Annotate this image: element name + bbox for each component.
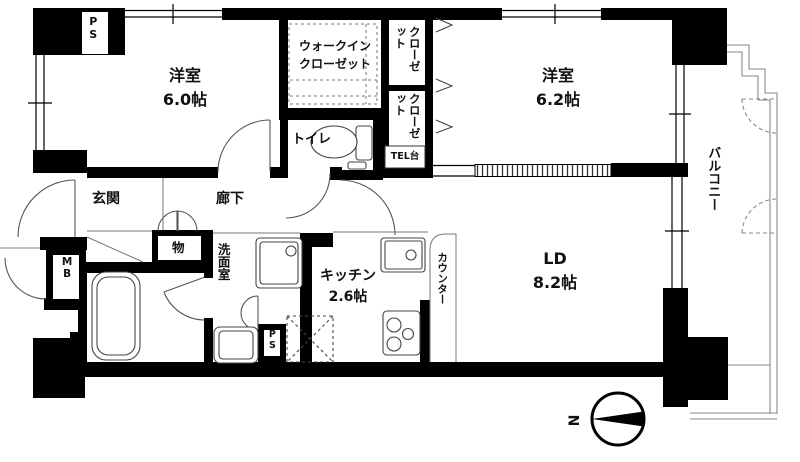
north-arrow bbox=[592, 412, 644, 427]
counter-label: カウンター bbox=[435, 252, 448, 334]
toilet-label: トイレ bbox=[292, 130, 331, 150]
living-dining-name: LD bbox=[543, 249, 566, 268]
entrance-label: 玄関 bbox=[92, 189, 120, 210]
walk-in-closet-label: ウォークイン クローゼット bbox=[288, 37, 382, 73]
bedroom2-size: 6.2帖 bbox=[536, 90, 580, 109]
toilet-door bbox=[286, 174, 330, 218]
kitchen-name: キッチン bbox=[320, 268, 376, 284]
kitchen-size: 2.6帖 bbox=[329, 289, 368, 305]
balcony-partition bbox=[742, 99, 777, 233]
entrance-step-line bbox=[87, 237, 143, 262]
pipe-space-bottom-label: PS bbox=[266, 329, 278, 359]
bedroom1-name: 洋室 bbox=[169, 66, 201, 85]
floor-plan: PS 洋室 6.0帖 ウォークイン クローゼット クローゼット クローゼット 洋… bbox=[0, 0, 800, 462]
closet-lower-label: クローゼット bbox=[393, 93, 422, 149]
bedroom2-label: 洋室 6.2帖 bbox=[500, 64, 616, 112]
bedroom1-door bbox=[218, 120, 270, 172]
vanity-sink bbox=[256, 238, 302, 288]
compass-north-label: N bbox=[561, 415, 582, 427]
bathtub bbox=[92, 272, 140, 360]
front-door-arc bbox=[18, 180, 75, 237]
pipe-space-top-label: PS bbox=[86, 15, 100, 55]
bath-door bbox=[164, 277, 205, 320]
ld-door bbox=[340, 180, 395, 235]
bedroom2-name: 洋室 bbox=[542, 66, 574, 85]
kitchen-label: キッチン 2.6帖 bbox=[302, 266, 394, 308]
closet-upper-label: クローゼット bbox=[393, 26, 422, 82]
mb-door-arc bbox=[5, 258, 46, 299]
compass bbox=[592, 393, 644, 445]
washroom-label: 洗面室 bbox=[215, 243, 231, 327]
washing-machine bbox=[214, 327, 258, 363]
bedroom1-label: 洋室 6.0帖 bbox=[130, 64, 240, 112]
walk-in-closet-line2: クローゼット bbox=[299, 57, 371, 71]
hallway-label: 廊下 bbox=[216, 189, 244, 210]
living-dining-size: 8.2帖 bbox=[533, 273, 577, 292]
tel-stand-label: TEL台 bbox=[385, 150, 425, 164]
bedroom1-size: 6.0帖 bbox=[163, 90, 207, 109]
living-dining-label: LD 8.2帖 bbox=[495, 247, 615, 295]
walk-in-closet-line1: ウォークイン bbox=[299, 39, 371, 53]
washroom-folding-door bbox=[241, 296, 258, 330]
stove bbox=[383, 311, 420, 355]
closet-door-chevrons bbox=[436, 18, 452, 133]
balcony-label: バルコニー bbox=[704, 146, 720, 246]
storage-label: 物 bbox=[172, 239, 185, 258]
meter-box-label: MB bbox=[60, 256, 73, 298]
storage-double-doors bbox=[158, 211, 197, 231]
